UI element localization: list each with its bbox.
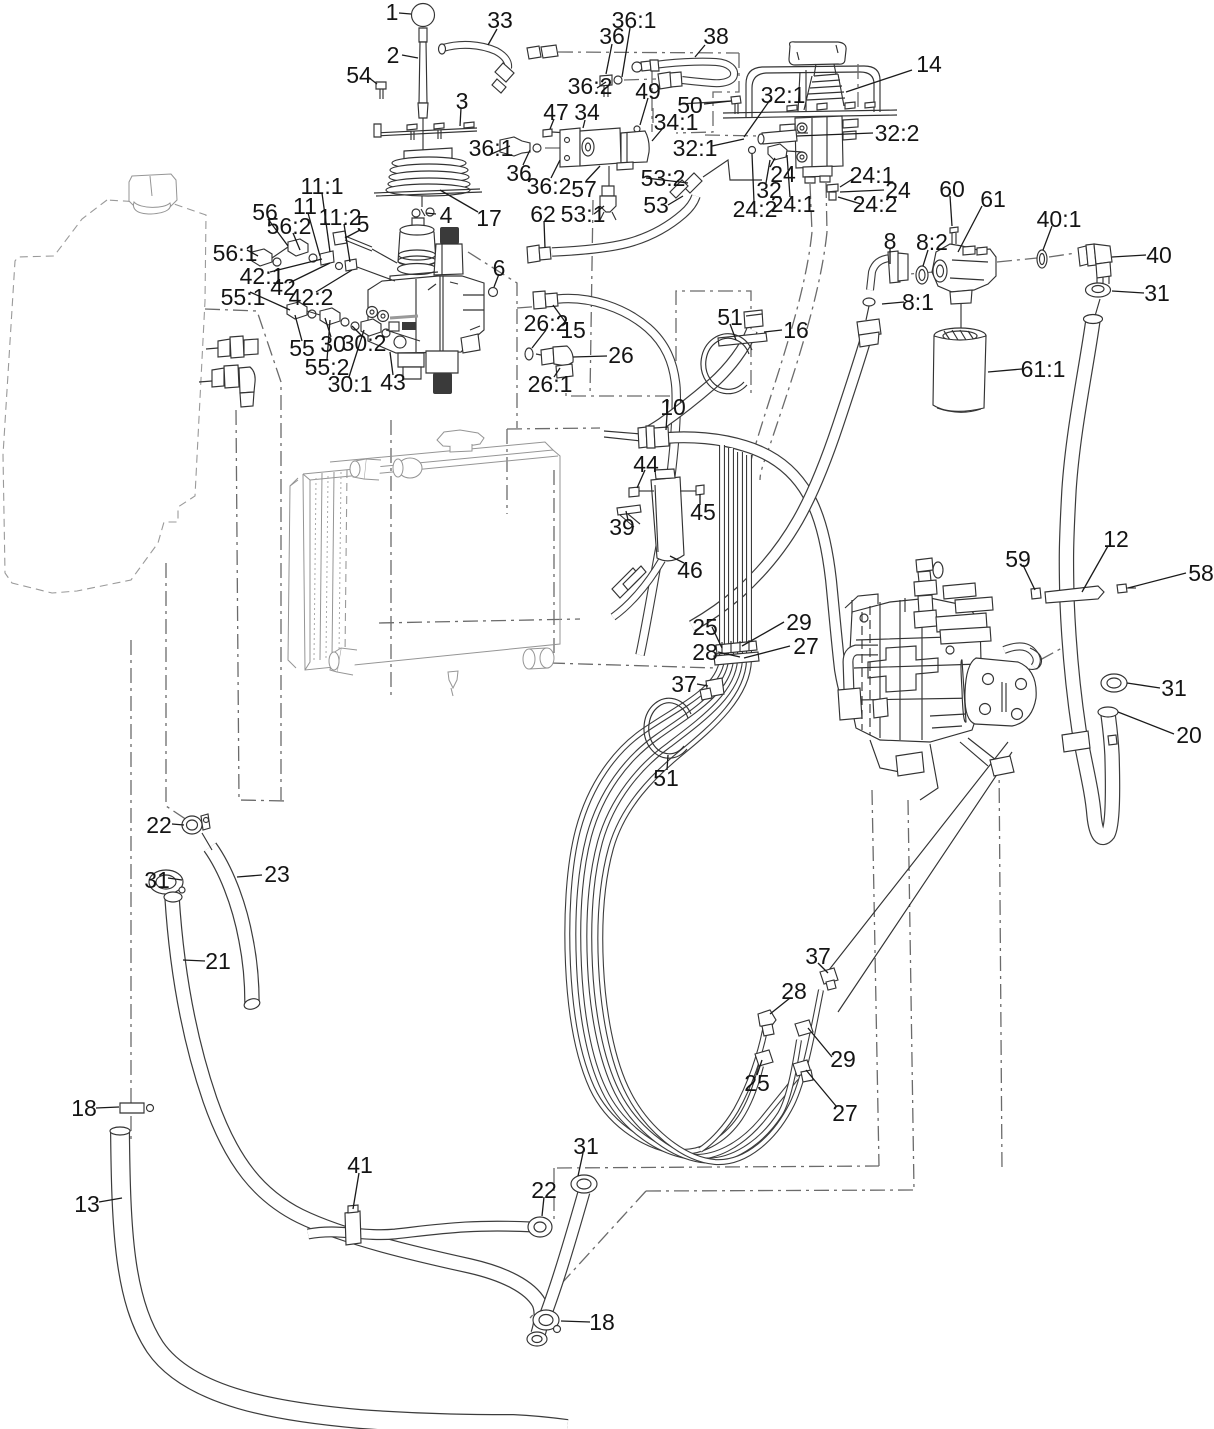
svg-text:40:1: 40:1 — [1037, 206, 1082, 232]
svg-text:60: 60 — [939, 176, 965, 202]
svg-text:25: 25 — [744, 1070, 770, 1096]
svg-text:61:1: 61:1 — [1021, 356, 1066, 382]
svg-text:28: 28 — [781, 978, 807, 1004]
svg-text:8: 8 — [884, 228, 897, 254]
svg-text:56:2: 56:2 — [267, 213, 312, 239]
svg-text:5: 5 — [357, 211, 370, 237]
svg-text:12: 12 — [1103, 526, 1129, 552]
svg-text:24:1: 24:1 — [771, 191, 816, 217]
svg-text:51: 51 — [717, 304, 743, 330]
svg-text:13: 13 — [74, 1191, 100, 1217]
svg-text:31: 31 — [573, 1133, 599, 1159]
svg-text:26:1: 26:1 — [528, 371, 573, 397]
svg-text:29: 29 — [830, 1046, 856, 1072]
svg-text:26: 26 — [608, 342, 634, 368]
svg-text:30:2: 30:2 — [342, 330, 387, 356]
svg-text:53: 53 — [643, 192, 669, 218]
svg-text:51: 51 — [653, 765, 679, 791]
svg-text:6: 6 — [493, 255, 506, 281]
svg-text:31: 31 — [1161, 675, 1187, 701]
svg-text:2: 2 — [387, 42, 400, 68]
svg-text:8:1: 8:1 — [902, 289, 934, 315]
svg-text:16: 16 — [783, 317, 809, 343]
svg-text:39: 39 — [609, 514, 635, 540]
svg-text:32:1: 32:1 — [761, 82, 806, 108]
svg-text:27: 27 — [793, 633, 819, 659]
svg-text:3: 3 — [456, 88, 469, 114]
svg-text:23: 23 — [264, 861, 290, 887]
svg-text:22: 22 — [531, 1177, 557, 1203]
svg-text:53:2: 53:2 — [641, 165, 686, 191]
svg-text:4: 4 — [440, 202, 453, 228]
svg-text:21: 21 — [205, 948, 231, 974]
svg-text:31: 31 — [1144, 280, 1170, 306]
svg-text:36: 36 — [599, 23, 625, 49]
svg-text:36:2: 36:2 — [568, 73, 613, 99]
svg-text:47: 47 — [543, 99, 569, 125]
svg-text:49: 49 — [635, 78, 661, 104]
svg-text:59: 59 — [1005, 546, 1031, 572]
svg-text:33: 33 — [487, 7, 513, 33]
svg-text:57: 57 — [571, 176, 597, 202]
svg-text:34: 34 — [574, 99, 600, 125]
svg-text:15: 15 — [560, 317, 586, 343]
svg-text:8:2: 8:2 — [916, 229, 948, 255]
svg-text:27: 27 — [832, 1100, 858, 1126]
svg-text:18: 18 — [71, 1095, 97, 1121]
svg-text:38: 38 — [703, 23, 729, 49]
svg-text:55:1: 55:1 — [221, 284, 266, 310]
svg-text:36:2: 36:2 — [527, 173, 572, 199]
svg-text:62: 62 — [530, 201, 556, 227]
svg-text:17: 17 — [476, 205, 502, 231]
svg-text:32:1: 32:1 — [673, 135, 718, 161]
svg-text:40: 40 — [1146, 242, 1172, 268]
svg-text:32:2: 32:2 — [875, 120, 920, 146]
svg-text:41: 41 — [347, 1152, 373, 1178]
svg-text:37: 37 — [671, 671, 697, 697]
svg-text:1: 1 — [386, 0, 399, 25]
svg-text:54: 54 — [346, 62, 372, 88]
svg-text:36:1: 36:1 — [469, 135, 514, 161]
svg-text:11:2: 11:2 — [318, 204, 361, 230]
svg-text:42:2: 42:2 — [289, 284, 334, 310]
svg-text:45: 45 — [690, 499, 716, 525]
svg-text:37: 37 — [805, 943, 831, 969]
svg-text:14: 14 — [916, 51, 942, 77]
svg-text:43: 43 — [380, 369, 406, 395]
svg-text:29: 29 — [786, 609, 812, 635]
svg-text:20: 20 — [1176, 722, 1202, 748]
svg-text:34:1: 34:1 — [654, 109, 699, 135]
svg-text:30:1: 30:1 — [328, 371, 373, 397]
svg-text:10: 10 — [660, 394, 686, 420]
svg-text:28: 28 — [692, 639, 718, 665]
svg-text:25: 25 — [692, 614, 718, 640]
svg-text:58: 58 — [1188, 560, 1214, 586]
svg-text:18: 18 — [589, 1309, 615, 1335]
svg-text:31: 31 — [144, 867, 170, 893]
svg-text:22: 22 — [146, 812, 172, 838]
svg-text:61: 61 — [980, 186, 1006, 212]
svg-text:53:1: 53:1 — [561, 201, 606, 227]
svg-text:24:2: 24:2 — [853, 191, 898, 217]
svg-text:44: 44 — [633, 451, 659, 477]
svg-text:46: 46 — [677, 557, 703, 583]
